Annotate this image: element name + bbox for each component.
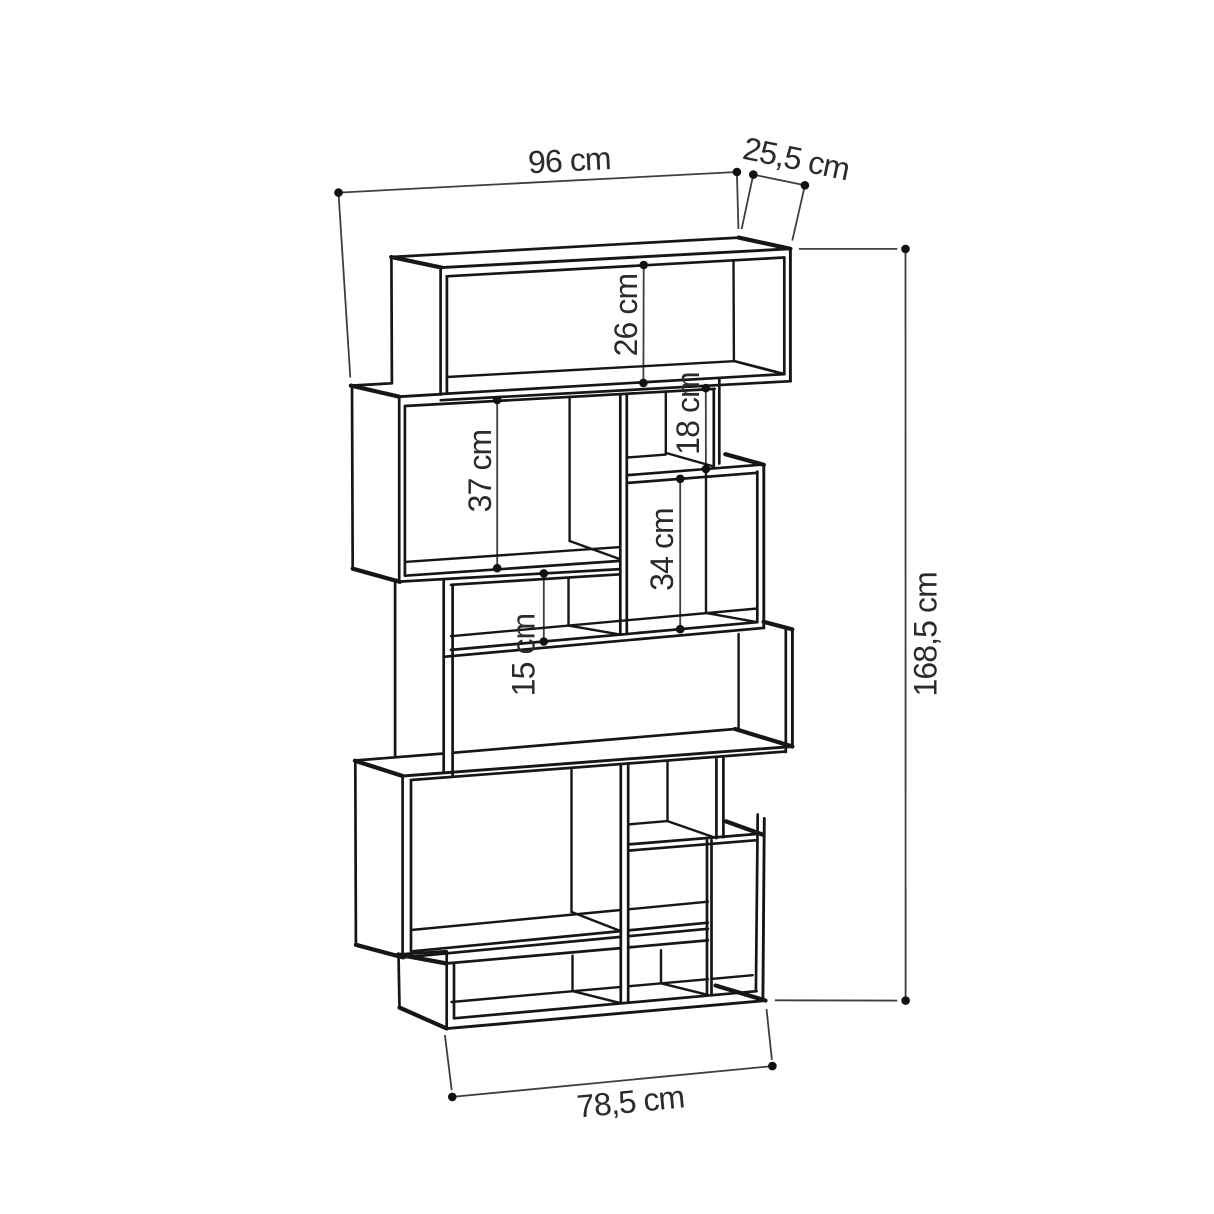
svg-text:18 cm: 18 cm xyxy=(670,372,706,455)
svg-text:96 cm: 96 cm xyxy=(527,140,611,180)
svg-text:168,5 cm: 168,5 cm xyxy=(908,572,944,696)
svg-text:26 cm: 26 cm xyxy=(608,274,644,357)
svg-text:37 cm: 37 cm xyxy=(462,430,498,513)
svg-text:15 cm: 15 cm xyxy=(506,614,542,697)
svg-text:34 cm: 34 cm xyxy=(644,508,680,591)
